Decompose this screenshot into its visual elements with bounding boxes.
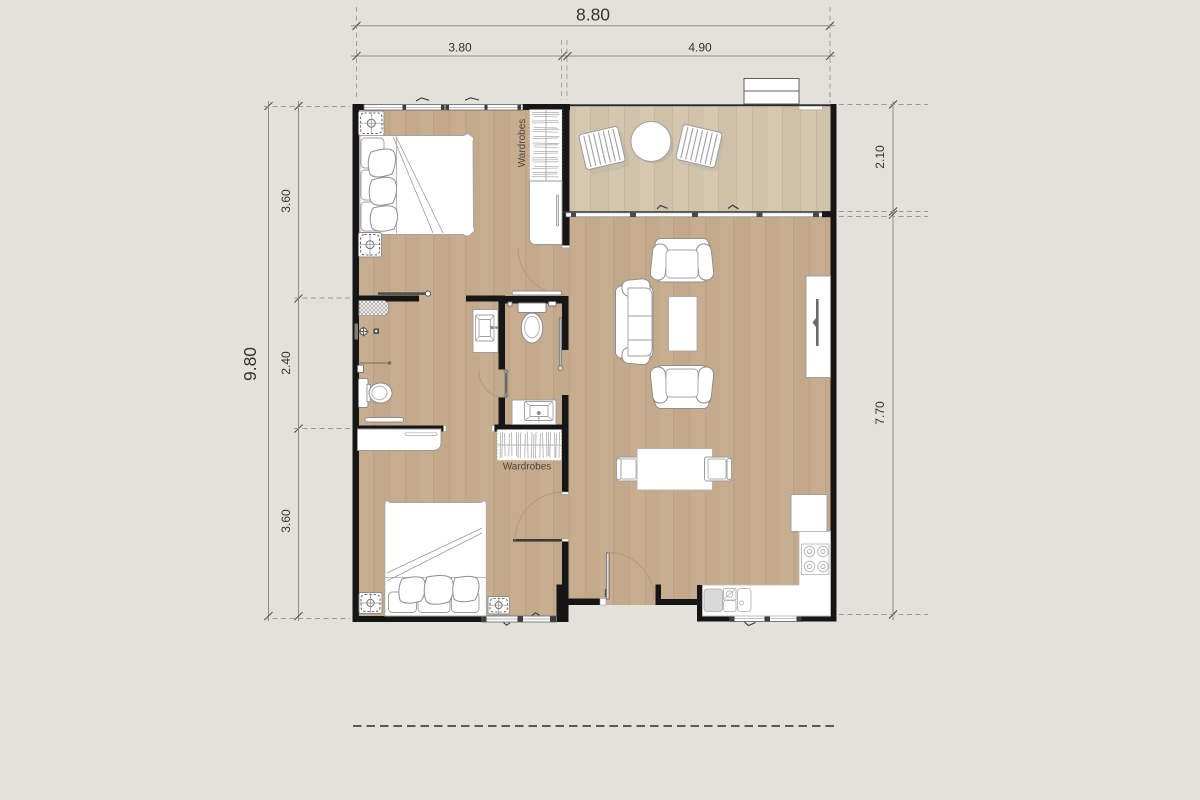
svg-text:8.80: 8.80 [576,5,610,25]
svg-text:Wardrobes: Wardrobes [517,119,528,168]
svg-text:4.90: 4.90 [688,41,712,55]
svg-text:Wardrobes: Wardrobes [503,462,552,473]
svg-text:7.70: 7.70 [873,401,887,425]
svg-text:9.80: 9.80 [240,347,260,381]
svg-text:3.60: 3.60 [279,189,293,213]
svg-text:2.10: 2.10 [873,145,887,169]
svg-text:3.80: 3.80 [448,41,472,55]
svg-text:3.60: 3.60 [279,509,293,533]
svg-text:2.40: 2.40 [279,351,293,375]
